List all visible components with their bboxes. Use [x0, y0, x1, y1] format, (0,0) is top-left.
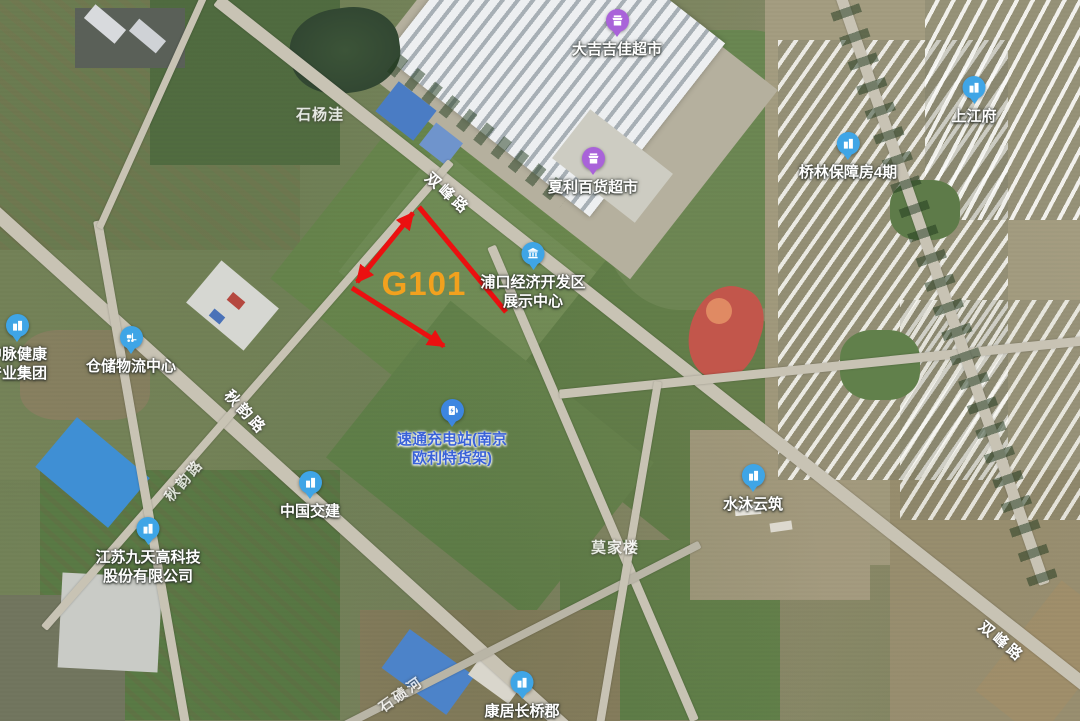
- building-icon: [510, 671, 533, 694]
- poi-label: 桥林保障房4期: [799, 163, 897, 182]
- poi-shangjiangfu[interactable]: 上江府: [951, 76, 996, 126]
- poi-jiangsu-jiutian-hitech[interactable]: 江苏九天高科技 股份有限公司: [95, 517, 200, 586]
- building-icon: [5, 314, 28, 337]
- poi-sutong-charging-station[interactable]: 速通充电站(南京 欧利特货架): [397, 399, 507, 468]
- store-icon: [581, 147, 604, 170]
- building-icon: [837, 132, 860, 155]
- forklift-icon: [119, 326, 142, 349]
- poi-label: 大吉吉佳超市: [572, 40, 662, 59]
- area-label-shiyangwa: 石杨洼: [296, 104, 344, 125]
- parcel-id-label: G101: [382, 265, 467, 303]
- poi-dajijiajia-supermarket[interactable]: 大吉吉佳超市: [572, 9, 662, 59]
- poi-label: 水沐云筑: [723, 495, 783, 514]
- poi-qiaolin-housing-phase4[interactable]: 桥林保障房4期: [799, 132, 897, 182]
- poi-label: 夏利百货超市: [548, 178, 638, 197]
- poi-label: 股份有限公司: [103, 567, 193, 586]
- poi-label: 中脉健康: [0, 345, 47, 364]
- poi-kangju-changqiaojun[interactable]: 康居长桥郡: [484, 671, 559, 721]
- poi-label: 仓储物流中心: [86, 357, 176, 376]
- poi-zhongmai-health-group[interactable]: 中脉健康 产业集团: [0, 314, 47, 383]
- poi-label: 欧利特货架): [412, 449, 492, 468]
- poi-label: 上江府: [951, 107, 996, 126]
- exhibition-hall-icon: [521, 242, 544, 265]
- poi-warehouse-logistics-center[interactable]: 仓储物流中心: [86, 326, 176, 376]
- poi-shuimu-yunzhu[interactable]: 水沐云筑: [723, 464, 783, 514]
- charging-station-icon: [441, 399, 464, 422]
- poi-china-communications-construction[interactable]: 中国交建: [280, 471, 340, 521]
- poi-label: 浦口经济开发区: [480, 273, 585, 292]
- poi-label: 速通充电站(南京: [397, 430, 507, 449]
- store-icon: [605, 9, 628, 32]
- poi-pukou-exhibition-center[interactable]: 浦口经济开发区 展示中心: [480, 242, 585, 311]
- poi-label: 展示中心: [503, 292, 563, 311]
- building-icon: [298, 471, 321, 494]
- satellite-map[interactable]: G101 大吉吉佳超市 夏利百货超市 浦口经济开发区 展示中心 上江府 桥林保障…: [0, 0, 1080, 721]
- area-label-mojialou: 莫家楼: [591, 537, 639, 558]
- building-icon: [136, 517, 159, 540]
- poi-label: 康居长桥郡: [484, 702, 559, 721]
- landmark-red-structure-top: [706, 298, 732, 324]
- poi-xiali-department-store[interactable]: 夏利百货超市: [548, 147, 638, 197]
- poi-label: 中国交建: [280, 502, 340, 521]
- building-icon: [962, 76, 985, 99]
- poi-label: 产业集团: [0, 364, 47, 383]
- poi-label: 江苏九天高科技: [95, 548, 200, 567]
- building-icon: [741, 464, 764, 487]
